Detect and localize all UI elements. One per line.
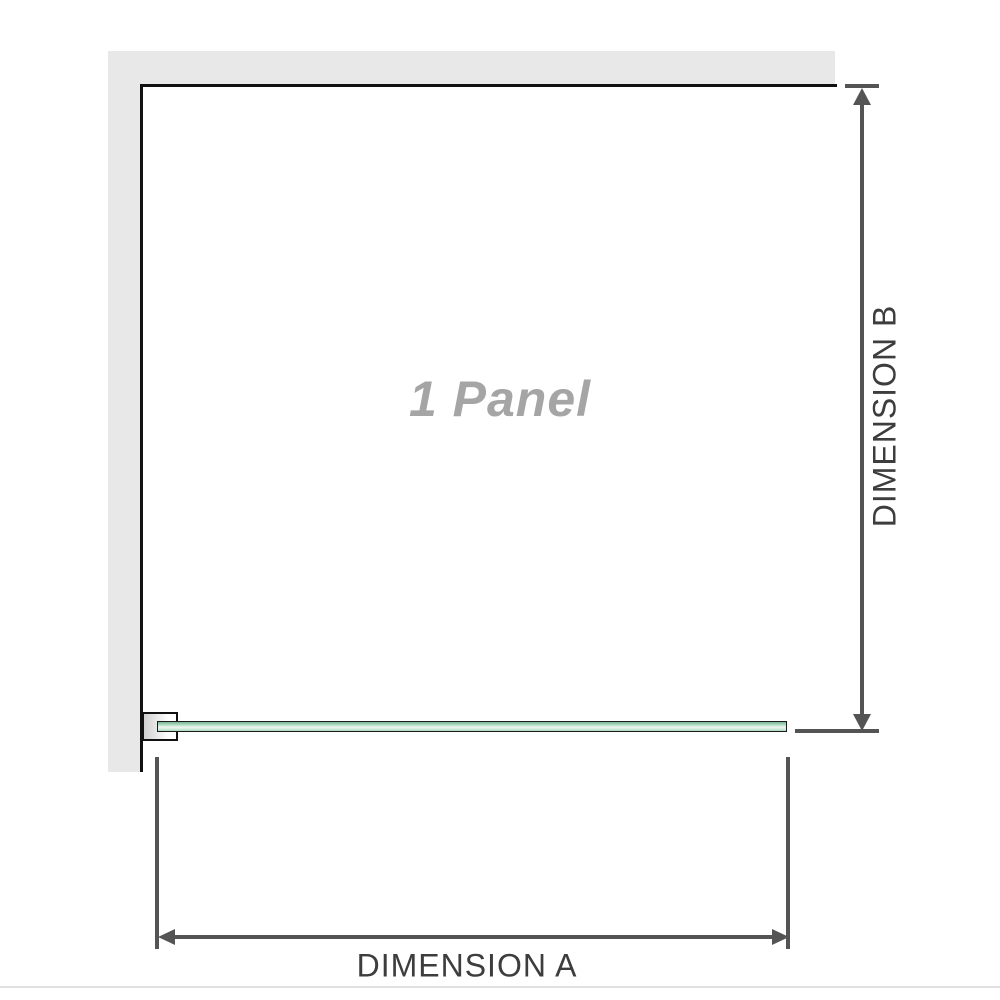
dim-a-arrow-left-icon (158, 929, 175, 945)
dim-a-arrow-right-icon (772, 929, 789, 945)
dim-b-arrow-up-icon (853, 88, 871, 105)
dim-a-extension-left (155, 757, 159, 949)
dim-a-label: DIMENSION A (357, 948, 578, 985)
dim-b-label: DIMENSION B (867, 305, 904, 528)
dim-a-line (172, 935, 776, 939)
dim-b-arrow-down-icon (853, 714, 871, 731)
wall-left (108, 51, 140, 772)
bottom-divider (0, 986, 1000, 988)
dim-a-extension-right (786, 757, 790, 949)
panel-label: 1 Panel (409, 370, 591, 428)
glass-panel (157, 721, 787, 732)
diagram-canvas: 1 Panel DIMENSION B DIMENSION A (0, 0, 1000, 1000)
panel-top-edge (140, 84, 837, 87)
wall-top (108, 51, 835, 84)
dim-b-line (860, 100, 864, 718)
panel-left-edge (140, 84, 143, 772)
